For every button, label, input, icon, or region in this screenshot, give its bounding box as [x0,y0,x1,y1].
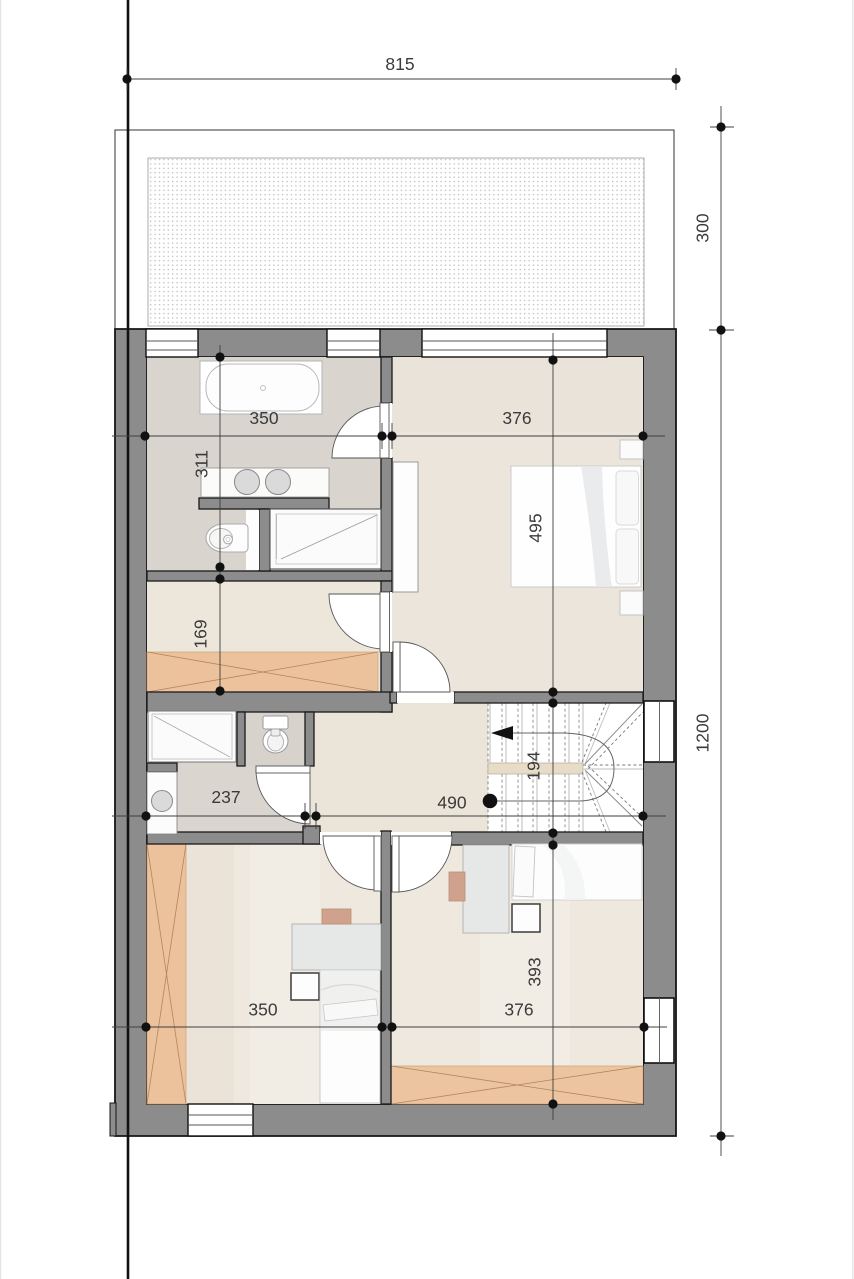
svg-text:1200: 1200 [693,713,713,752]
svg-text:393: 393 [525,957,545,986]
svg-text:300: 300 [693,213,713,242]
svg-text:237: 237 [211,787,240,807]
svg-text:490: 490 [437,793,466,813]
svg-text:376: 376 [504,1000,533,1020]
svg-text:311: 311 [192,450,212,478]
svg-text:350: 350 [248,1000,277,1020]
svg-text:194: 194 [524,751,544,780]
svg-text:815: 815 [385,54,414,74]
svg-text:495: 495 [526,513,546,542]
svg-text:350: 350 [249,408,278,428]
svg-text:169: 169 [191,619,211,648]
svg-text:376: 376 [502,408,531,428]
